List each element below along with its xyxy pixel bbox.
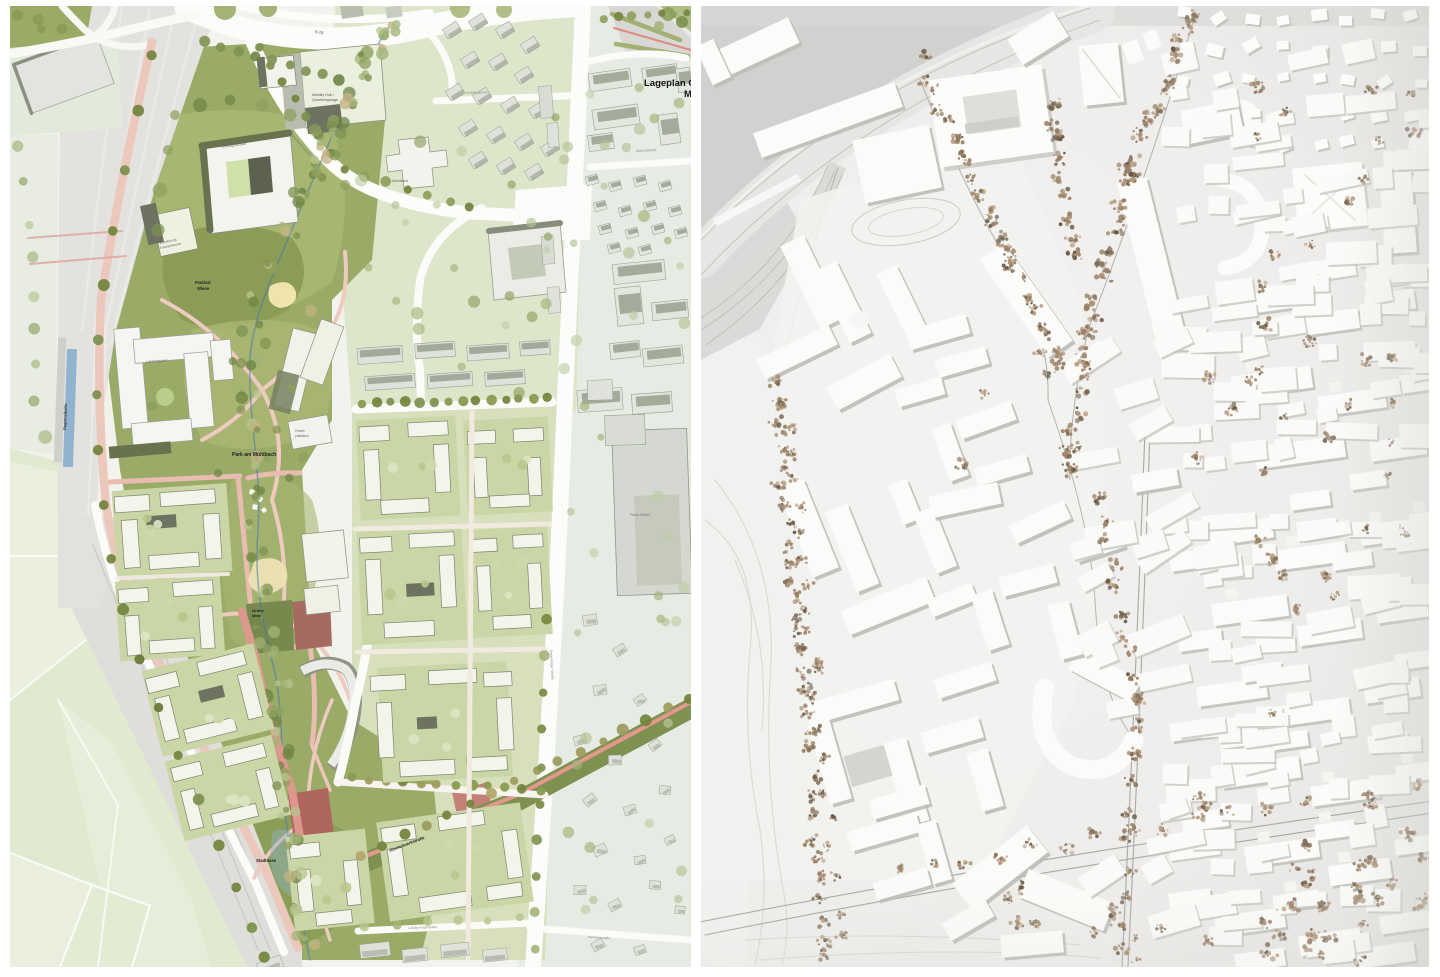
svg-text:Lageplan Opti: Lageplan Opti (644, 78, 707, 89)
svg-text:Schellingstraße: Schellingstraße (466, 90, 488, 95)
svg-text:Mobility Hub /: Mobility Hub / (312, 93, 334, 97)
svg-text:Park am Mühlbach: Park am Mühlbach (232, 452, 276, 458)
svg-text:M: M (684, 89, 692, 100)
svg-text:Festival: Festival (195, 280, 211, 285)
svg-text:Stadtoase: Stadtoase (256, 858, 277, 863)
svg-text:Quartiersgarage: Quartiersgarage (312, 98, 338, 102)
svg-text:Regionalbahn: Regionalbahn (62, 403, 68, 430)
svg-text:präsidium: präsidium (295, 434, 309, 438)
svg-text:Mitte: Mitte (252, 613, 262, 618)
svg-text:Polizei-: Polizei- (295, 429, 305, 433)
svg-text:Arbeitsamt: Arbeitsamt (392, 179, 408, 183)
svg-text:Wiese: Wiese (197, 286, 210, 291)
svg-text:Firma Walter: Firma Walter (630, 513, 651, 517)
